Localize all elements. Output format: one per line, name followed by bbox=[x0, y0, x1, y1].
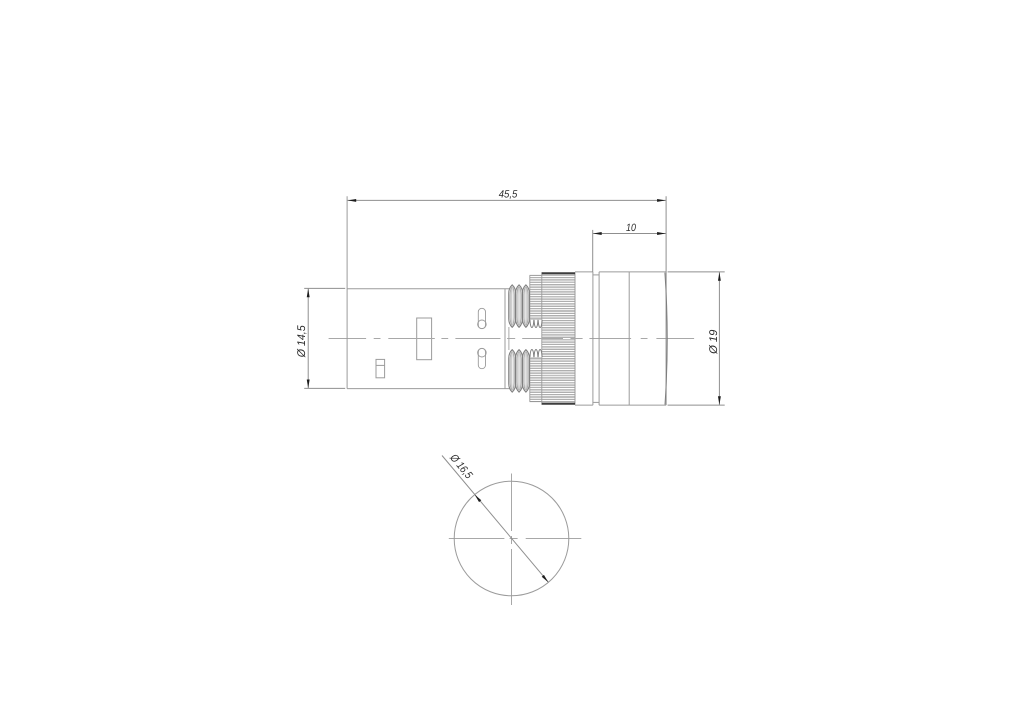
svg-text:10: 10 bbox=[626, 222, 636, 234]
svg-text:Ø 19: Ø 19 bbox=[708, 330, 720, 355]
svg-text:Ø 14,5: Ø 14,5 bbox=[296, 325, 308, 359]
svg-text:45,5: 45,5 bbox=[499, 188, 518, 200]
